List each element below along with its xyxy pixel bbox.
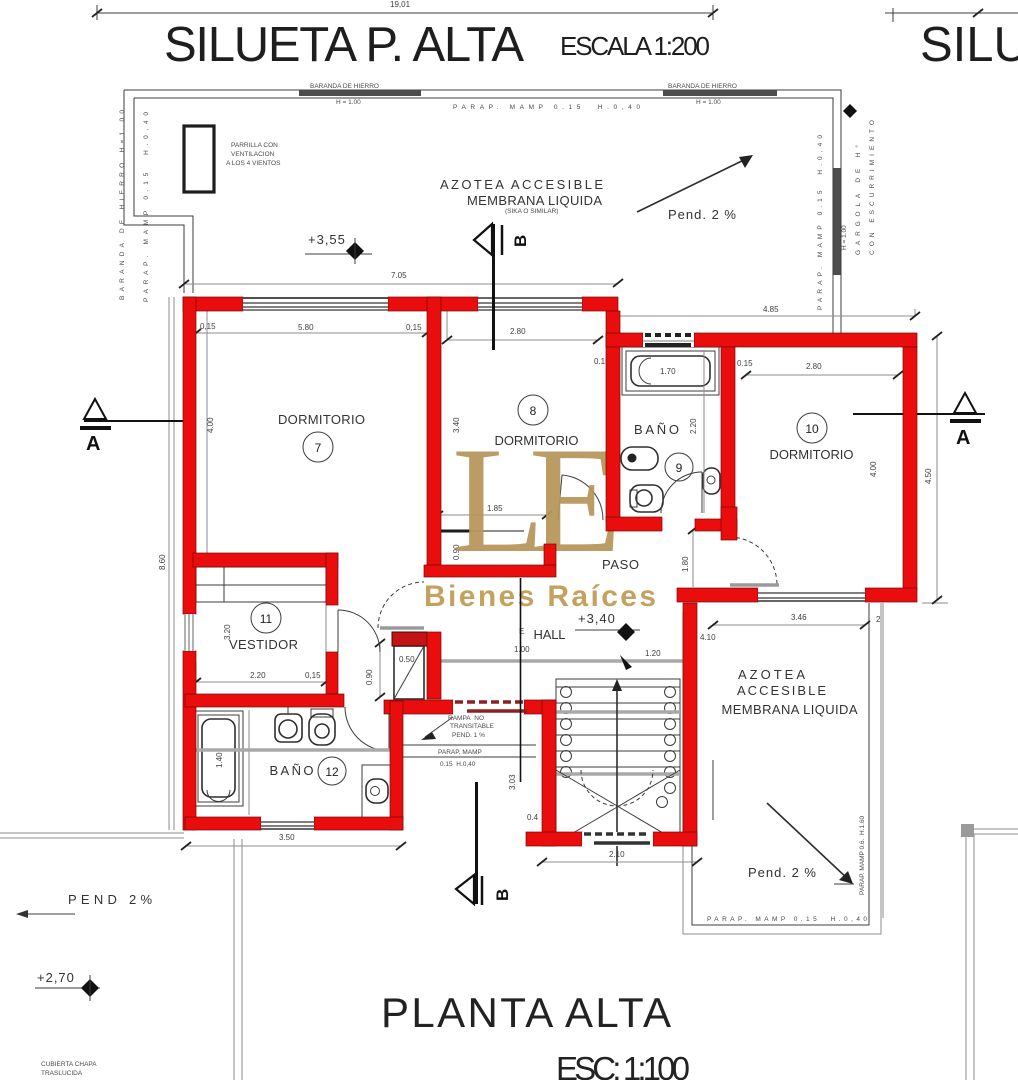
svg-text:4.10: 4.10 <box>700 633 716 642</box>
svg-text:1.20: 1.20 <box>645 649 661 658</box>
svg-text:5.80: 5.80 <box>298 323 314 332</box>
svg-text:H = 1.00: H = 1.00 <box>696 99 721 106</box>
svg-text:1.70: 1.70 <box>660 367 676 376</box>
svg-text:TRASLUCIDA: TRASLUCIDA <box>41 1070 83 1077</box>
svg-text:4.00: 4.00 <box>869 461 878 477</box>
svg-text:2: 2 <box>876 615 881 624</box>
svg-text:1.80: 1.80 <box>681 556 690 572</box>
svg-text:+2,70: +2,70 <box>37 970 75 985</box>
svg-text:10: 10 <box>805 422 819 436</box>
svg-text:B: B <box>511 235 530 247</box>
svg-text:3.50: 3.50 <box>279 833 295 842</box>
svg-text:PARAP. MAMP: PARAP. MAMP <box>438 749 482 756</box>
svg-text:CUBIERTA CHAPA: CUBIERTA CHAPA <box>41 1061 97 1068</box>
svg-text:9: 9 <box>676 461 683 475</box>
svg-text:2.10: 2.10 <box>609 850 625 859</box>
svg-text:BARANDA DE HIERRO: BARANDA DE HIERRO <box>310 83 379 90</box>
svg-text:H = 1.00: H = 1.00 <box>336 99 361 106</box>
svg-text:PLANTA ALTA: PLANTA ALTA <box>381 989 674 1036</box>
svg-text:12: 12 <box>325 765 339 779</box>
svg-text:AZOTEA ACCESIBLE: AZOTEA ACCESIBLE <box>440 177 604 192</box>
svg-text:HALL: HALL <box>534 627 567 642</box>
svg-text:3.46: 3.46 <box>791 613 807 622</box>
svg-text:0.15: 0.15 <box>737 359 753 368</box>
svg-text:A LOS 4 VIENTOS: A LOS 4 VIENTOS <box>226 160 281 167</box>
svg-text:4.00: 4.00 <box>206 417 215 433</box>
svg-text:19,01: 19,01 <box>390 0 411 9</box>
svg-text:0.15 H.0,40: 0.15 H.0,40 <box>440 761 476 768</box>
svg-text:ESCALA 1:200: ESCALA 1:200 <box>560 31 710 61</box>
svg-text:SILUETA: SILUETA <box>920 18 1018 72</box>
svg-text:Pend. 2 %: Pend. 2 % <box>748 865 817 880</box>
svg-text:2.80: 2.80 <box>510 327 526 336</box>
svg-text:BAÑO: BAÑO <box>270 763 315 778</box>
svg-text:BAÑO: BAÑO <box>634 422 680 437</box>
svg-text:PEND. 1 %: PEND. 1 % <box>452 732 485 739</box>
svg-text:4.85: 4.85 <box>763 305 779 314</box>
svg-text:RAMPA NO: RAMPA NO <box>448 715 484 722</box>
svg-text:7: 7 <box>315 441 322 455</box>
svg-text:DORMITORIO: DORMITORIO <box>770 447 855 462</box>
svg-text:0.4: 0.4 <box>527 813 539 822</box>
svg-text:3.03: 3.03 <box>508 774 517 790</box>
svg-text:VESTIDOR: VESTIDOR <box>229 637 299 652</box>
svg-text:4.50: 4.50 <box>924 468 933 484</box>
svg-text:CON ESCURRIMIENTO: CON ESCURRIMIENTO <box>869 120 876 255</box>
svg-text:BARANDA DE HIERRO: BARANDA DE HIERRO <box>668 83 737 90</box>
svg-text:Pend. 2 %: Pend. 2 % <box>668 207 737 222</box>
svg-text:2.20: 2.20 <box>689 418 698 434</box>
svg-text:ESC: 1:100: ESC: 1:100 <box>556 1050 690 1080</box>
svg-text:+3,40: +3,40 <box>578 611 616 626</box>
svg-text:A: A <box>86 433 100 455</box>
svg-text:3.20: 3.20 <box>223 624 232 640</box>
svg-text:PEND 2%: PEND 2% <box>68 892 153 907</box>
svg-text:MEMBRANA LIQUIDA: MEMBRANA LIQUIDA <box>467 193 603 208</box>
svg-text:11: 11 <box>260 612 273 626</box>
svg-text:MEMBRANA LIQUIDA: MEMBRANA LIQUIDA <box>722 702 859 717</box>
svg-text:A: A <box>956 427 970 449</box>
svg-text:2.80: 2.80 <box>806 362 822 371</box>
svg-text:1.00: 1.00 <box>514 645 530 654</box>
svg-text:0,15: 0,15 <box>305 671 321 680</box>
svg-text:2.20: 2.20 <box>250 671 266 680</box>
svg-text:TRANSITABLE: TRANSITABLE <box>450 723 495 730</box>
svg-text:0.90: 0.90 <box>365 669 374 685</box>
svg-text:0.50: 0.50 <box>399 655 415 664</box>
svg-text:8.60: 8.60 <box>158 554 167 570</box>
svg-text:B: B <box>493 889 512 901</box>
svg-text:PARAP. MAMP 0.6. H.1.60: PARAP. MAMP 0.6. H.1.60 <box>859 815 866 895</box>
svg-text:H = 1.00: H = 1.00 <box>841 225 848 250</box>
svg-text:0,15: 0,15 <box>406 323 422 332</box>
svg-text:VENTILACION: VENTILACION <box>231 151 275 158</box>
svg-text:7.05: 7.05 <box>391 271 407 280</box>
svg-text:PARRILLA CON: PARRILLA CON <box>231 142 278 149</box>
svg-text:LE: LE <box>452 416 622 584</box>
svg-text:DORMITORIO: DORMITORIO <box>278 412 366 427</box>
svg-text:ACCESIBLE: ACCESIBLE <box>737 683 827 698</box>
svg-text:Bienes Raíces: Bienes Raíces <box>424 580 656 613</box>
svg-text:0,15: 0,15 <box>200 322 216 331</box>
svg-text:1.40: 1.40 <box>215 752 224 768</box>
svg-text:SILUETA P. ALTA: SILUETA P. ALTA <box>164 18 524 72</box>
svg-text:(SIKA O SIMILAR): (SIKA O SIMILAR) <box>505 208 558 215</box>
svg-text:+3,55: +3,55 <box>308 232 346 247</box>
